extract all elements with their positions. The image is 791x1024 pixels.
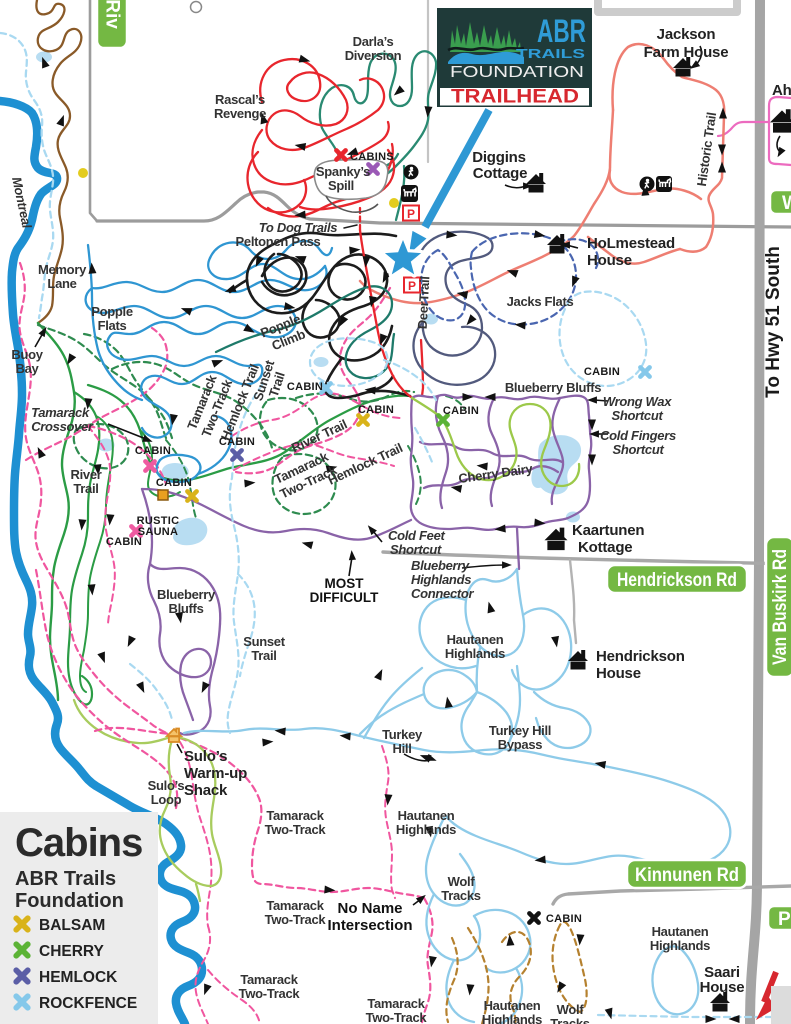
svg-text:Jacks Flats: Jacks Flats (507, 294, 574, 309)
svg-text:House: House (587, 252, 632, 269)
svg-text:DeerTrail: DeerTrail (415, 276, 433, 330)
svg-text:Two-Track: Two-Track (239, 986, 301, 1001)
svg-text:Highlands: Highlands (445, 646, 505, 661)
svg-text:CABIN: CABIN (358, 404, 394, 416)
svg-text:Hendrickson Rd: Hendrickson Rd (617, 570, 737, 591)
svg-text:Two-Track: Two-Track (265, 822, 327, 837)
svg-text:CABIN: CABIN (156, 477, 192, 489)
svg-text:Foundation: Foundation (15, 890, 124, 912)
svg-text:Blueberry: Blueberry (411, 558, 470, 573)
svg-text:CABIN: CABIN (584, 366, 620, 378)
svg-text:Tracks: Tracks (550, 1016, 589, 1024)
svg-text:CABINS: CABINS (350, 151, 394, 163)
svg-text:DIFFICULT: DIFFICULT (310, 590, 379, 605)
svg-text:Diggins: Diggins (472, 149, 526, 166)
svg-text:To Dog Trails: To Dog Trails (259, 220, 338, 235)
svg-text:Popple: Popple (91, 304, 133, 319)
svg-text:Diversion: Diversion (345, 48, 402, 63)
svg-text:Trail: Trail (73, 481, 98, 496)
svg-text:Bluffs: Bluffs (168, 601, 203, 616)
svg-text:ROCKFENCE: ROCKFENCE (39, 995, 137, 1012)
svg-text:Farm House: Farm House (644, 44, 729, 61)
svg-text:Lane: Lane (47, 276, 76, 291)
svg-text:MOST: MOST (325, 576, 365, 591)
svg-text:Buoy: Buoy (11, 347, 43, 362)
svg-text:CABIN: CABIN (106, 536, 142, 548)
svg-text:Sulo’s: Sulo’s (184, 748, 227, 765)
svg-text:Rascal’s: Rascal’s (215, 92, 265, 107)
svg-text:FOUNDATION: FOUNDATION (450, 64, 584, 81)
svg-text:Flats: Flats (98, 318, 127, 333)
svg-text:Cold Fingers: Cold Fingers (600, 428, 676, 443)
svg-text:Spanky’s: Spanky’s (316, 164, 370, 179)
svg-text:Two-Track: Two-Track (366, 1010, 428, 1024)
svg-text:P: P (407, 207, 415, 221)
svg-text:Sulo’s: Sulo’s (148, 778, 185, 793)
svg-text:Tamarack: Tamarack (266, 808, 324, 823)
svg-text:CABIN: CABIN (135, 445, 171, 457)
svg-text:House: House (596, 665, 641, 682)
svg-text:HoLmestead: HoLmestead (587, 235, 675, 252)
svg-text:TRAILS: TRAILS (516, 47, 585, 61)
svg-text:Cabins: Cabins (15, 821, 142, 865)
svg-text:Connector: Connector (411, 586, 475, 601)
svg-text:BALSAM: BALSAM (39, 917, 105, 934)
svg-text:Shortcut: Shortcut (611, 408, 663, 423)
svg-text:Trail: Trail (251, 648, 276, 663)
svg-text:Wrong Wax: Wrong Wax (603, 394, 672, 409)
svg-text:Darla’s: Darla’s (353, 34, 394, 49)
svg-text:Hautanen: Hautanen (652, 924, 709, 939)
svg-text:Shortcut: Shortcut (390, 542, 442, 557)
svg-text:Van Buskirk Rd: Van Buskirk Rd (770, 549, 791, 665)
svg-text:CHERRY: CHERRY (39, 943, 105, 960)
svg-text:No Name: No Name (337, 900, 402, 917)
svg-text:CABIN: CABIN (443, 405, 479, 417)
svg-text:Cottage: Cottage (473, 165, 527, 182)
svg-text:Spill: Spill (328, 178, 354, 193)
svg-text:CABIN: CABIN (546, 913, 582, 925)
svg-text:Turkey Hill: Turkey Hill (489, 723, 551, 738)
svg-text:Jackson: Jackson (657, 26, 716, 43)
svg-text:W: W (782, 193, 791, 214)
svg-text:Aht: Aht (772, 82, 791, 99)
svg-text:Kottage: Kottage (578, 539, 632, 556)
svg-text:Wolf: Wolf (557, 1002, 585, 1017)
svg-text:Highlands: Highlands (650, 938, 710, 953)
svg-text:Hendrickson: Hendrickson (596, 648, 685, 665)
svg-text:Shack: Shack (184, 782, 228, 799)
svg-text:Peltonen Pass: Peltonen Pass (236, 234, 321, 249)
svg-text:HEMLOCK: HEMLOCK (39, 969, 118, 986)
svg-text:Blueberry Bluffs: Blueberry Bluffs (505, 380, 601, 395)
svg-text:SAUNA: SAUNA (138, 526, 179, 538)
svg-text:Blueberry: Blueberry (157, 587, 216, 602)
svg-text:Revenge: Revenge (214, 106, 266, 121)
svg-text:Hill: Hill (392, 741, 411, 756)
svg-text:Riv: Riv (102, 0, 123, 29)
svg-text:Wolf: Wolf (448, 874, 476, 889)
svg-text:Intersection: Intersection (327, 917, 412, 934)
svg-text:Tamarack: Tamarack (266, 898, 324, 913)
svg-text:Tracks: Tracks (441, 888, 480, 903)
svg-text:Hautanen: Hautanen (398, 808, 455, 823)
svg-text:Cold Feet: Cold Feet (388, 528, 445, 543)
svg-text:River: River (70, 467, 101, 482)
svg-text:Bay: Bay (16, 361, 40, 376)
svg-text:ABR: ABR (537, 13, 586, 49)
svg-text:Loop: Loop (151, 792, 182, 807)
svg-text:Bypass: Bypass (498, 737, 543, 752)
svg-text:Sunset: Sunset (243, 634, 286, 649)
svg-text:Highlands: Highlands (482, 1012, 542, 1024)
svg-text:Memory: Memory (38, 262, 87, 277)
svg-text:Warm-up: Warm-up (184, 765, 247, 782)
svg-text:Crossover: Crossover (31, 419, 94, 434)
svg-text:Turkey: Turkey (382, 727, 423, 742)
svg-text:ABR Trails: ABR Trails (15, 868, 116, 890)
svg-text:Highlands: Highlands (411, 572, 471, 587)
svg-text:CABIN: CABIN (219, 436, 255, 448)
svg-text:Shortcut: Shortcut (612, 442, 664, 457)
svg-text:Tamarack: Tamarack (367, 996, 425, 1011)
svg-text:Hautanen: Hautanen (484, 998, 541, 1013)
svg-text:House: House (700, 979, 745, 996)
svg-text:P: P (778, 909, 791, 930)
svg-text:To Hwy 51 South: To Hwy 51 South (763, 246, 784, 398)
svg-text:Kaartunen: Kaartunen (572, 522, 644, 539)
svg-text:Tamarack: Tamarack (31, 405, 90, 420)
svg-text:Two-Track: Two-Track (265, 912, 327, 927)
svg-text:Hautanen: Hautanen (447, 632, 504, 647)
svg-text:Tamarack: Tamarack (240, 972, 298, 987)
svg-text:CABIN: CABIN (287, 381, 323, 393)
svg-text:Highlands: Highlands (396, 822, 456, 837)
svg-text:P: P (408, 279, 416, 293)
svg-text:Kinnunen Rd: Kinnunen Rd (635, 865, 739, 886)
svg-text:TRAILHEAD: TRAILHEAD (451, 87, 579, 108)
